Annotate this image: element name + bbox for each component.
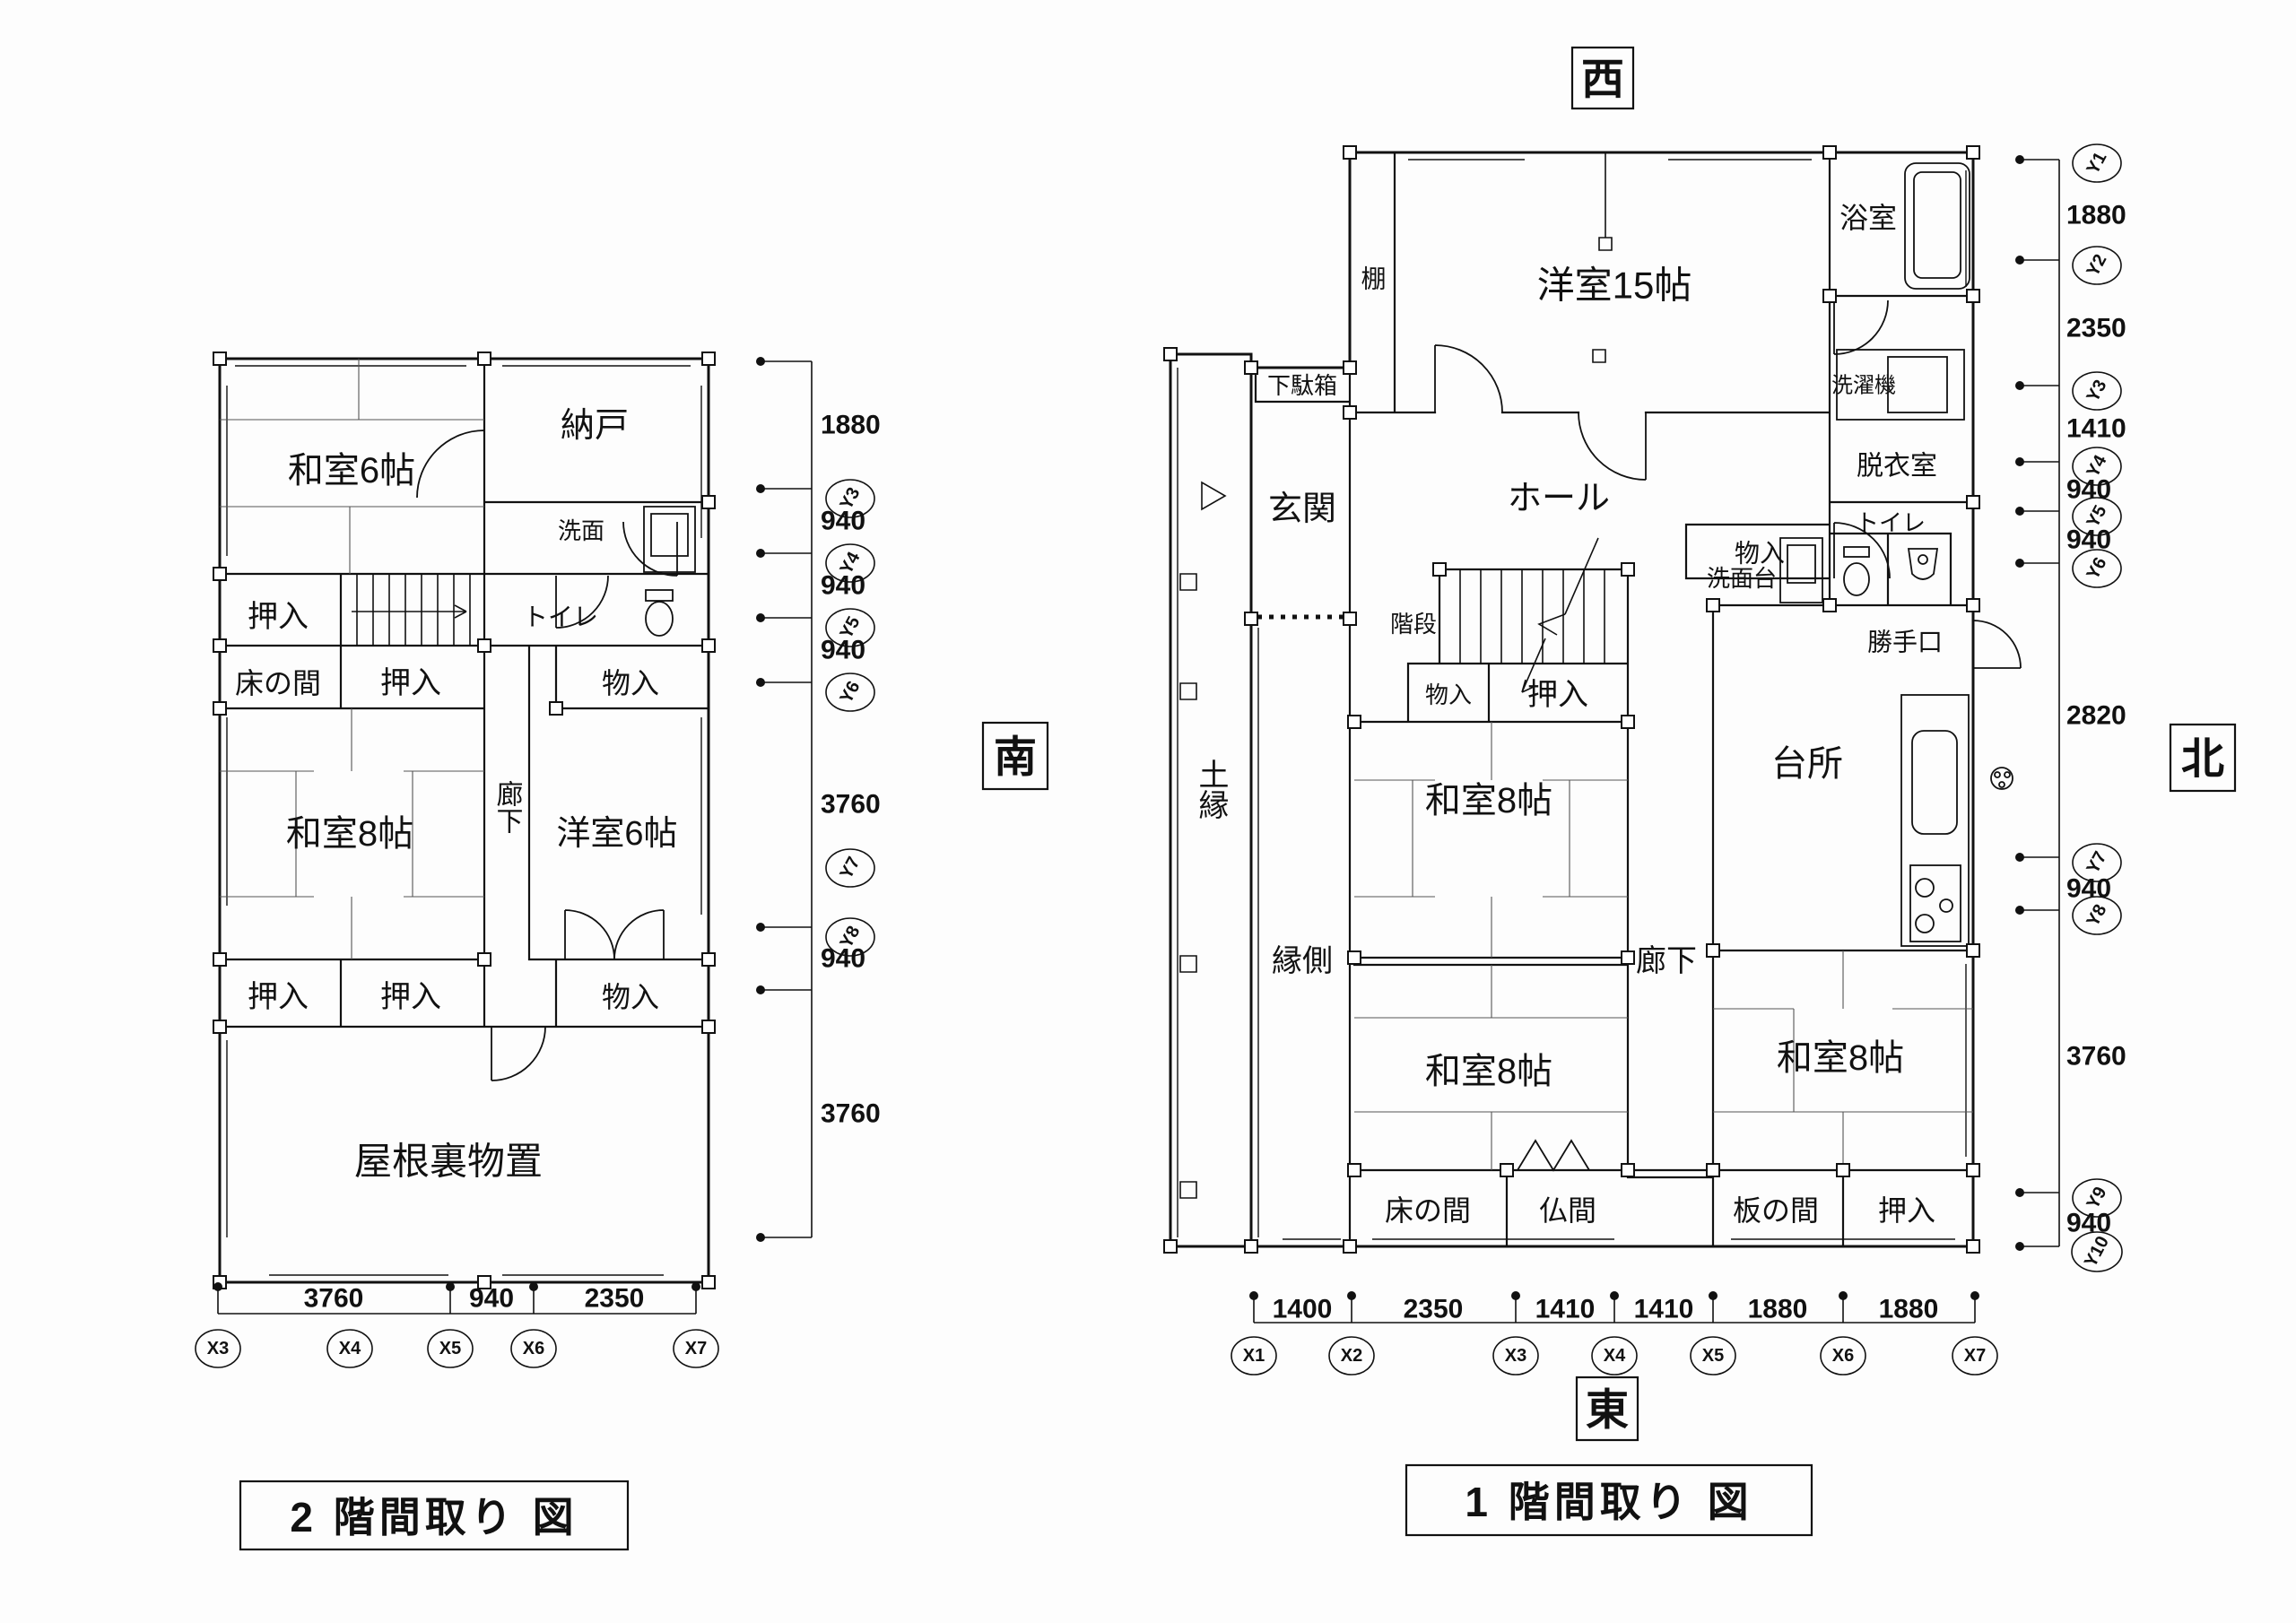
svg-text:X3: X3 [1505,1346,1526,1366]
room-1f-monoire-2: 物入 [1425,681,1472,708]
room-2f-rouka: 廊下 [492,780,524,834]
room-2f-nando: 納戸 [561,407,629,445]
svg-text:2350: 2350 [1404,1295,1464,1324]
floorplan-sheet: 和室6帖 納戸 洗面 トイレ 押入 床の間 押入 物入 和室8帖 廊下 洋室6帖… [0,0,2296,1623]
stairs-1f-arrow [1522,538,1598,692]
room-1f-yokushitsu: 浴室 [1839,202,1897,234]
room-1f-kaidan: 階段 [1390,611,1437,638]
room-1f-toilet: トイレ [1856,509,1926,536]
svg-text:X6: X6 [523,1339,544,1358]
svg-text:940: 940 [2066,475,2111,505]
svg-text:X3: X3 [207,1339,229,1358]
bathtub-icon [1905,163,1970,289]
walls-1f-inner [1256,152,1973,1246]
room-2f-youshitsu6: 洋室6帖 [556,815,677,853]
svg-text:Y10: Y10 [2081,1233,2113,1271]
room-1f-sentakuki: 洗濯機 [1831,374,1896,398]
room-2f-monoire-1: 物入 [602,667,659,699]
room-1f-washitsu8-b: 和室8帖 [1425,1052,1552,1091]
room-1f-tokonoma: 床の間 [1385,1194,1471,1227]
svg-text:3760: 3760 [2066,1042,2126,1072]
room-1f-monoire-1: 物入 [1735,540,1785,568]
svg-text:940: 940 [821,571,865,601]
svg-text:X5: X5 [1702,1346,1724,1366]
svg-text:Y6: Y6 [2083,554,2111,583]
room-2f-yaneura: 屋根裏物置 [354,1141,543,1183]
kitchen-icons [1901,695,2013,946]
svg-text:X7: X7 [685,1339,707,1358]
room-1f-katteguchi: 勝手口 [1867,629,1943,656]
svg-text:Y1: Y1 [2083,149,2111,178]
room-2f-oshiire-4: 押入 [380,980,441,1014]
room-1f-doen: 土縁 [1194,759,1228,820]
room-2f-washitsu6: 和室6帖 [288,451,415,490]
dims-2f-bottom: 3760 940 2350 X3 X4 X5 X6 X7 [196,1282,718,1367]
plan-titles: 2 階間取り 図 1 階間取り 図 [240,1465,1812,1549]
washbasin-2f-icon [644,507,695,572]
svg-text:1410: 1410 [1535,1295,1596,1324]
direction-west: 西 [1581,56,1624,104]
svg-text:3760: 3760 [821,790,881,820]
svg-text:X4: X4 [1604,1346,1626,1366]
room-2f-senmen: 洗面 [558,517,604,544]
room-1f-hall: ホール [1508,480,1610,517]
room-1f-youshitsu15: 洋室15帖 [1537,265,1692,307]
dims-1f-right: 1880 2350 1410 940 940 2820 940 3760 940… [2015,144,2126,1271]
svg-text:940: 940 [821,507,865,536]
svg-text:940: 940 [469,1284,514,1314]
svg-text:3760: 3760 [821,1099,881,1129]
room-1f-washitsu8-c: 和室8帖 [1777,1038,1904,1078]
stairs-2f [357,574,470,646]
tatami-2f [220,359,484,959]
room-2f-oshiire-3: 押入 [248,980,309,1014]
stairs-2f-arrow [352,605,466,618]
title-1f: 1 階間取り 図 [1465,1479,1752,1525]
svg-text:Y6: Y6 [837,678,865,707]
svg-text:940: 940 [821,636,865,665]
room-1f-daidokoro: 台所 [1771,744,1843,784]
direction-east: 東 [1586,1387,1629,1435]
plan-2f: 和室6帖 納戸 洗面 トイレ 押入 床の間 押入 物入 和室8帖 廊下 洋室6帖… [196,352,881,1367]
room-1f-datsuiishitsu: 脱衣室 [1857,452,1937,482]
room-1f-rouka: 廊下 [1636,944,1697,978]
direction-south: 南 [994,734,1037,782]
svg-text:X6: X6 [1832,1346,1854,1366]
svg-text:1400: 1400 [1273,1295,1333,1324]
room-2f-oshiire-2: 押入 [380,666,441,700]
svg-text:X7: X7 [1964,1346,1986,1366]
floorplan-drawing: 和室6帖 納戸 洗面 トイレ 押入 床の間 押入 物入 和室8帖 廊下 洋室6帖… [0,0,2296,1623]
plan-1f: 棚 洋室15帖 浴室 洗濯機 脱衣室 物入 下駄箱 玄関 ホール 階段 物入 押… [1164,144,2126,1375]
svg-text:Y7: Y7 [837,854,865,882]
svg-text:2820: 2820 [2066,701,2126,731]
post-stubs-1f [1593,152,1612,362]
title-2f: 2 階間取り 図 [290,1494,578,1541]
svg-text:940: 940 [2066,874,2111,904]
toilet-2f-icon [646,590,673,636]
dims-2f-right: 1880 940 940 940 3760 940 3760 Y3 Y4 Y5 … [756,357,881,1242]
room-1f-oshiire-2: 押入 [1878,1194,1935,1227]
room-1f-tana: 棚 [1359,265,1387,291]
svg-text:940: 940 [821,944,865,974]
svg-text:1880: 1880 [1879,1295,1939,1324]
svg-text:1410: 1410 [1634,1295,1694,1324]
room-1f-genkan: 玄関 [1268,490,1336,528]
svg-text:X2: X2 [1341,1346,1362,1366]
doen-wall-marks [1180,482,1225,1198]
room-1f-itanoma: 板の間 [1733,1194,1819,1227]
svg-text:2350: 2350 [585,1284,645,1314]
room-2f-toilet: トイレ [523,603,598,631]
room-2f-tokonoma: 床の間 [235,667,321,699]
svg-text:1880: 1880 [2066,201,2126,230]
svg-text:Y3: Y3 [2083,377,2111,405]
dims-1f-bottom: 1400 2350 1410 1410 1880 1880 X1 X2 X3 X… [1231,1291,1997,1375]
svg-text:1880: 1880 [821,411,881,440]
svg-text:3760: 3760 [304,1284,364,1314]
svg-text:Y8: Y8 [2083,901,2111,930]
room-1f-butsuma: 仏間 [1539,1194,1596,1227]
svg-text:1410: 1410 [2066,414,2126,444]
svg-text:X4: X4 [339,1339,361,1358]
svg-text:Y7: Y7 [2083,848,2111,877]
svg-text:2350: 2350 [2066,314,2126,343]
room-1f-senmendai: 洗面台 [1707,565,1777,592]
direction-north: 北 [2181,736,2224,784]
room-1f-getabako: 下駄箱 [1267,372,1337,399]
svg-text:Y2: Y2 [2083,251,2111,280]
svg-text:X5: X5 [439,1339,461,1358]
svg-text:1880: 1880 [1748,1295,1808,1324]
svg-text:X1: X1 [1243,1346,1265,1366]
room-1f-washitsu8-a: 和室8帖 [1425,781,1552,820]
stairs-1f [1460,569,1605,664]
toilet-1f-icon [1844,547,1937,595]
room-2f-oshiire-1: 押入 [248,600,309,634]
room-2f-washitsu8: 和室8帖 [286,814,413,854]
room-1f-oshiire-1: 押入 [1527,678,1588,712]
butsuma-mark [1518,1141,1589,1170]
room-2f-monoire-2: 物入 [602,981,659,1013]
washstand-1f-icon [1780,538,1822,603]
room-1f-engawa: 縁側 [1272,944,1333,978]
